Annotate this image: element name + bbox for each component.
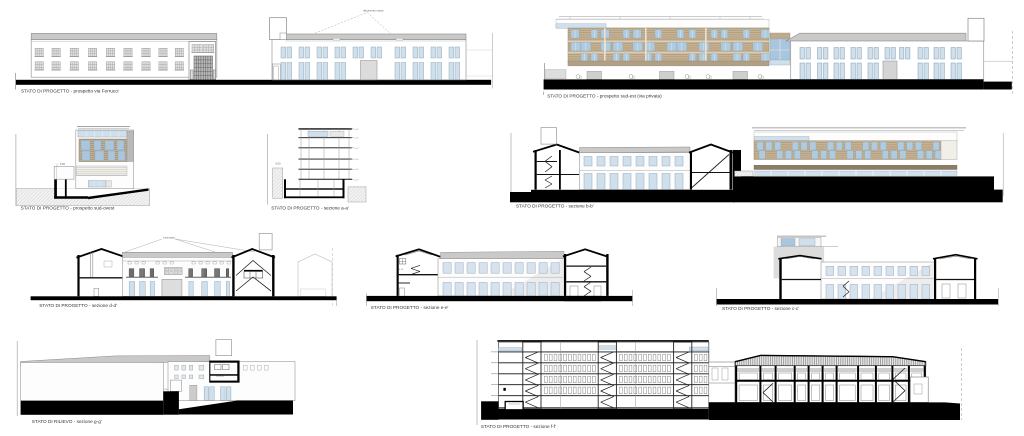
svg-text:STATO DI PROGETTO - prospetto: STATO DI PROGETTO - prospetto sud-ovest xyxy=(21,205,115,210)
svg-text:STATO DI PROGETTO - sezione d-: STATO DI PROGETTO - sezione d-d' xyxy=(39,303,117,308)
svg-text:rifacimento manto: rifacimento manto xyxy=(363,9,384,13)
svg-text:STATO DI PROGETTO - sezione b-: STATO DI PROGETTO - sezione b-b' xyxy=(516,204,594,209)
svg-text:STATO DI PROGETTO - prospetto: STATO DI PROGETTO - prospetto via Ferruc… xyxy=(21,88,119,93)
svg-text:STATO DI RILIEVO - sezione g-g: STATO DI RILIEVO - sezione g-g' xyxy=(32,419,102,424)
svg-text:6.00: 6.00 xyxy=(276,162,282,166)
svg-text:STATO DI PROGETTO - sezione c-: STATO DI PROGETTO - sezione c-c' xyxy=(722,306,799,311)
svg-text:STATO DI PROGETTO - prospetto: STATO DI PROGETTO - prospetto sud-est (v… xyxy=(547,94,662,99)
svg-text:5.90: 5.90 xyxy=(60,162,66,166)
svg-text:STATO DI PROGETTO - sezione e-: STATO DI PROGETTO - sezione e-e' xyxy=(371,305,449,310)
svg-text:STATO DI PROGETTO - sezione f-: STATO DI PROGETTO - sezione f-f' xyxy=(481,424,556,429)
svg-text:STATO DI PROGETTO - sezione a-: STATO DI PROGETTO - sezione a-a' xyxy=(271,205,349,210)
svg-text:lucernario: lucernario xyxy=(163,235,175,239)
